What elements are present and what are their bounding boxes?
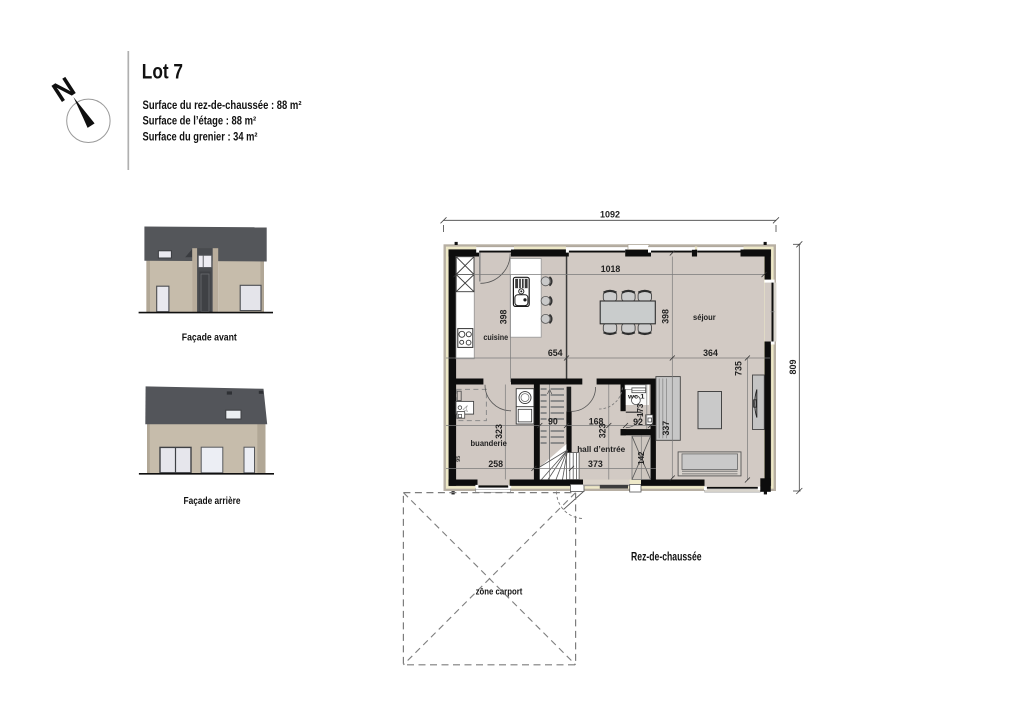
svg-text:258: 258: [488, 459, 503, 469]
svg-text:654: 654: [548, 348, 563, 358]
svg-text:364: 364: [703, 348, 718, 358]
svg-text:92: 92: [633, 417, 643, 427]
svg-text:séjour: séjour: [693, 313, 716, 322]
svg-text:buanderie: buanderie: [471, 439, 508, 448]
svg-text:Lot 7: Lot 7: [142, 60, 183, 84]
svg-text:323: 323: [598, 423, 608, 438]
svg-text:Façade arrière: Façade arrière: [184, 495, 241, 507]
svg-text:173: 173: [636, 403, 645, 417]
svg-text:95: 95: [456, 456, 462, 462]
svg-text:735: 735: [733, 361, 743, 376]
svg-text:90: 90: [548, 417, 558, 427]
svg-text:398: 398: [499, 309, 509, 324]
svg-text:wc 1: wc 1: [627, 393, 645, 400]
svg-text:323: 323: [494, 424, 504, 439]
svg-text:Surface du grenier : 34 m²: Surface du grenier : 34 m²: [143, 131, 258, 143]
svg-text:zône carport: zône carport: [476, 587, 523, 598]
svg-text:1018: 1018: [601, 264, 621, 274]
svg-text:398: 398: [661, 309, 671, 324]
svg-text:809: 809: [788, 359, 798, 374]
svg-text:cuisine: cuisine: [483, 333, 508, 342]
svg-text:337: 337: [661, 421, 671, 436]
svg-text:142: 142: [637, 451, 646, 465]
svg-text:373: 373: [588, 459, 603, 469]
svg-text:Façade avant: Façade avant: [182, 331, 237, 343]
svg-text:1092: 1092: [600, 210, 620, 220]
svg-text:Surface du rez-de-chaussée : 8: Surface du rez-de-chaussée : 88 m²: [143, 100, 302, 112]
svg-text:hall d’entrée: hall d’entrée: [577, 445, 625, 454]
svg-text:Surface de l’étage : 88 m²: Surface de l’étage : 88 m²: [143, 116, 257, 128]
svg-text:Rez-de-chaussée: Rez-de-chaussée: [631, 552, 702, 564]
